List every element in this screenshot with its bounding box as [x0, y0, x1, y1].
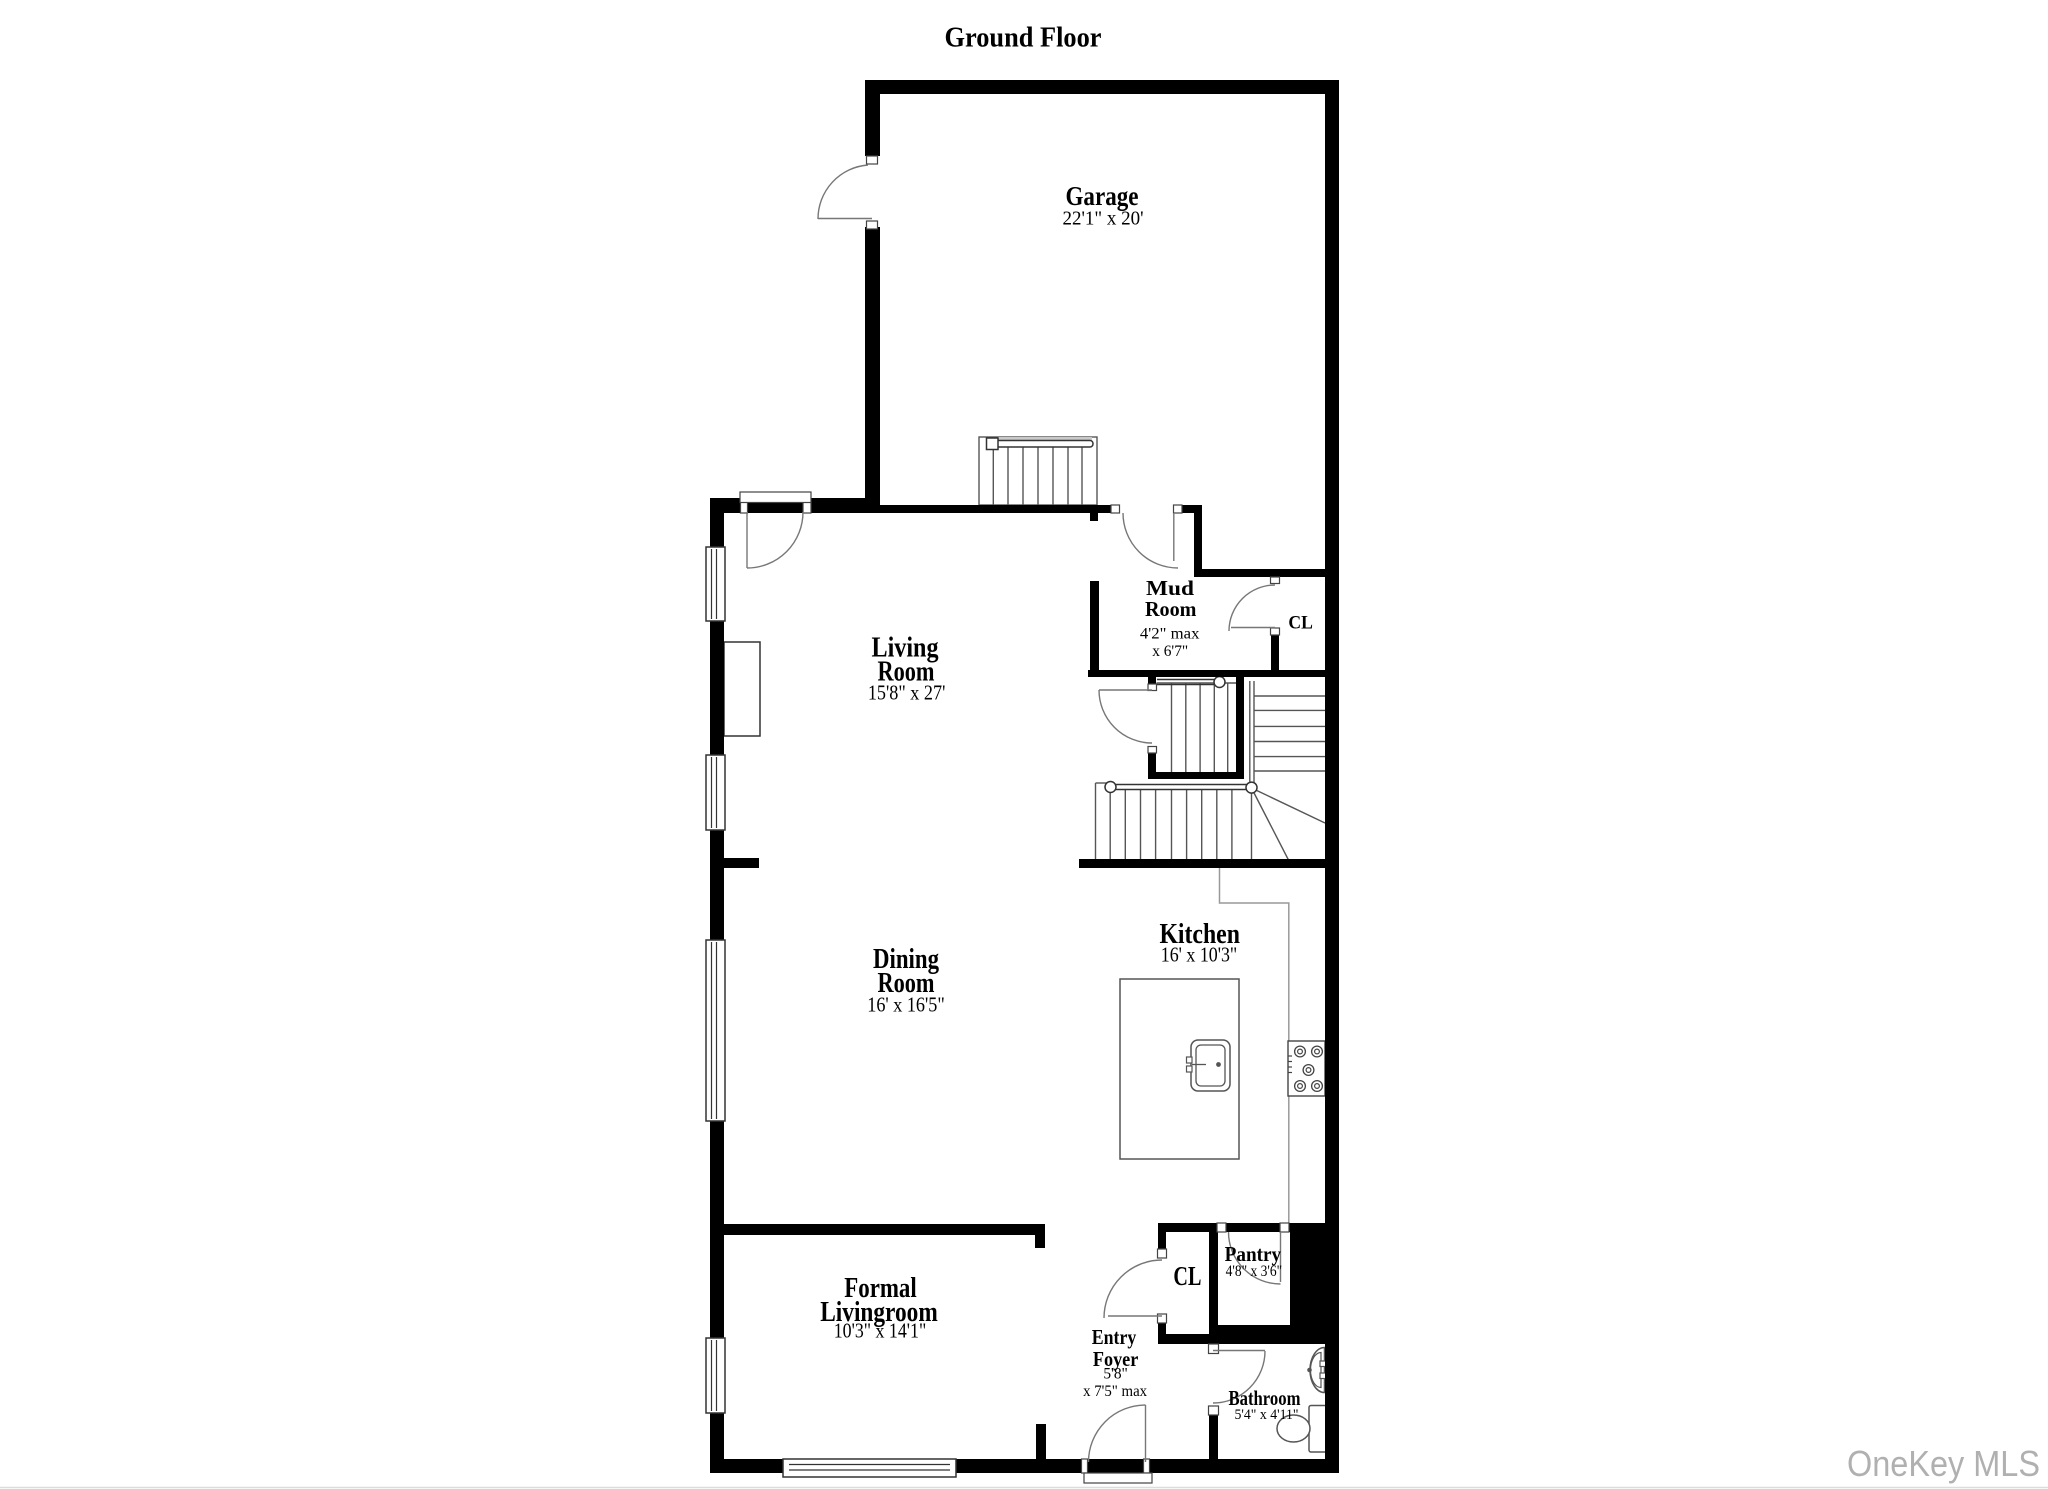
svg-text:x 7'5" max: x 7'5" max	[1083, 1383, 1147, 1400]
svg-text:Garage: Garage	[1066, 181, 1139, 211]
svg-text:4'8" x 3'6": 4'8" x 3'6"	[1226, 1263, 1283, 1280]
svg-text:15'8" x 27': 15'8" x 27'	[868, 681, 946, 705]
svg-text:5'8": 5'8"	[1103, 1366, 1128, 1383]
svg-text:5'4" x 4'11": 5'4" x 4'11"	[1235, 1407, 1299, 1423]
svg-text:10'3" x 14'1": 10'3" x 14'1"	[834, 1319, 927, 1343]
svg-text:16' x 10'3": 16' x 10'3"	[1161, 943, 1238, 967]
svg-text:Room: Room	[1145, 597, 1197, 621]
svg-text:4'2" max: 4'2" max	[1140, 626, 1200, 643]
svg-text:CL: CL	[1173, 1261, 1201, 1291]
svg-text:OneKey MLS: OneKey MLS	[1847, 1443, 2040, 1484]
svg-text:Entry: Entry	[1092, 1325, 1137, 1349]
svg-text:x 6'7": x 6'7"	[1152, 643, 1188, 660]
svg-text:Ground Floor: Ground Floor	[945, 23, 1102, 54]
svg-text:22'1" x 20': 22'1" x 20'	[1063, 208, 1144, 230]
svg-text:16' x 16'5": 16' x 16'5"	[867, 993, 945, 1017]
svg-text:CL: CL	[1288, 613, 1313, 634]
